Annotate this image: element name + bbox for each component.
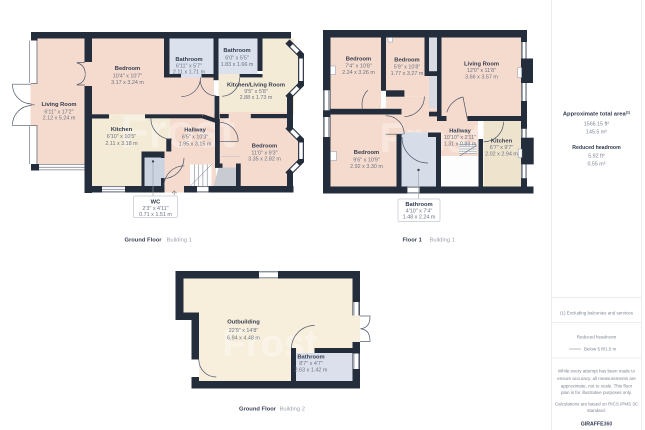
svg-text:11'0" x 9'3": 11'0" x 9'3" xyxy=(251,151,277,157)
svg-text:6'5" x 10'3": 6'5" x 10'3" xyxy=(182,135,209,141)
svg-text:Calculations are based on RICS: Calculations are based on RICS IPMS 3C xyxy=(555,402,639,407)
svg-text:Reduced headroom: Reduced headroom xyxy=(572,145,621,151)
svg-text:Bedroom: Bedroom xyxy=(354,150,379,156)
svg-text:3.17 x 3.24 m: 3.17 x 3.24 m xyxy=(111,80,144,86)
svg-text:Living Room: Living Room xyxy=(464,62,499,68)
svg-text:1566.15 ft²: 1566.15 ft² xyxy=(584,122,610,128)
svg-text:Kitchen: Kitchen xyxy=(111,127,133,133)
svg-text:Hallway: Hallway xyxy=(449,129,471,135)
svg-text:Bathroom: Bathroom xyxy=(175,57,202,63)
svg-text:Outbuilding: Outbuilding xyxy=(227,320,260,326)
svg-text:Bedroom: Bedroom xyxy=(252,143,277,149)
svg-text:Bedroom: Bedroom xyxy=(394,58,419,64)
svg-text:2.88 x 1.73 m: 2.88 x 1.73 m xyxy=(240,95,273,101)
svg-text:Bedroom: Bedroom xyxy=(346,57,371,63)
svg-text:10'10" x 2'11": 10'10" x 2'11" xyxy=(444,135,476,141)
svg-text:Bedroom: Bedroom xyxy=(115,66,140,72)
svg-text:6'7" x 9'7": 6'7" x 9'7" xyxy=(490,145,514,151)
svg-text:12'0" x 11'8": 12'0" x 11'8" xyxy=(467,68,496,74)
svg-text:Ground Floor: Ground Floor xyxy=(239,407,277,413)
svg-text:Hallway: Hallway xyxy=(184,128,206,134)
svg-text:WC: WC xyxy=(151,200,161,206)
svg-text:Building 2: Building 2 xyxy=(280,407,305,413)
svg-text:GIRAFFE360: GIRAFFE360 xyxy=(581,421,613,427)
svg-text:standard.: standard. xyxy=(587,408,606,413)
svg-text:2.92 x 3.30 m: 2.92 x 3.30 m xyxy=(350,164,383,170)
svg-text:9'6" x 10'9": 9'6" x 10'9" xyxy=(353,158,380,164)
svg-text:While every attempt has been m: While every attempt has been made to xyxy=(558,369,636,374)
svg-text:Floor 1: Floor 1 xyxy=(403,238,423,244)
svg-text:(1) Excluding balconies and se: (1) Excluding balconies and services xyxy=(560,311,634,316)
svg-text:Reduced headroom: Reduced headroom xyxy=(577,335,617,340)
svg-text:Building 1: Building 1 xyxy=(430,238,455,244)
svg-text:ensure accuracy, all measureme: ensure accuracy, all measurements are xyxy=(557,376,636,381)
svg-text:3.35 x 2.82 m: 3.35 x 2.82 m xyxy=(248,157,281,163)
svg-text:1.77 x 3.27 m: 1.77 x 3.27 m xyxy=(391,71,424,77)
svg-text:22'9" x 14'8": 22'9" x 14'8" xyxy=(229,328,259,334)
svg-text:Bathroom: Bathroom xyxy=(297,355,324,361)
svg-text:145.5 m²: 145.5 m² xyxy=(586,130,607,136)
svg-text:5'9" x 10'8": 5'9" x 10'8" xyxy=(394,65,421,71)
svg-text:2.11 x 1.71 m: 2.11 x 1.71 m xyxy=(173,70,206,76)
svg-text:4'10" x 7'4": 4'10" x 7'4" xyxy=(406,208,433,214)
svg-text:Approximate total area(1): Approximate total area(1) xyxy=(563,111,631,118)
svg-text:2.12 x 5.24 m: 2.12 x 5.24 m xyxy=(43,116,76,122)
svg-text:3.66 x 3.57 m: 3.66 x 3.57 m xyxy=(465,75,498,81)
svg-text:0.55 m²: 0.55 m² xyxy=(588,162,606,168)
svg-text:Building 1: Building 1 xyxy=(167,238,192,244)
svg-text:Living Room: Living Room xyxy=(41,102,76,108)
svg-text:Kitchen/Living Room: Kitchen/Living Room xyxy=(227,83,285,89)
svg-text:Ground Floor: Ground Floor xyxy=(125,238,163,244)
svg-text:2.02 x 2.94 m: 2.02 x 2.94 m xyxy=(485,152,518,158)
svg-text:1.48 x 2.24 m: 1.48 x 2.24 m xyxy=(403,215,436,221)
svg-text:plan is for illustrative purpo: plan is for illustrative purposes only. xyxy=(561,390,632,395)
svg-text:2.11 x 3.18 m: 2.11 x 3.18 m xyxy=(105,141,138,147)
svg-text:7'4" x 10'8": 7'4" x 10'8" xyxy=(345,64,372,70)
svg-text:Below 5 ft/1.5 m: Below 5 ft/1.5 m xyxy=(584,346,617,351)
svg-text:Kitchen: Kitchen xyxy=(491,139,513,145)
svg-text:6.94 x 4.48 m: 6.94 x 4.48 m xyxy=(227,336,260,342)
svg-text:1.83 x 1.66 m: 1.83 x 1.66 m xyxy=(221,62,254,68)
svg-text:approximate, not to scale. Thi: approximate, not to scale. This floor xyxy=(561,384,633,389)
svg-text:2.63 x 1.42 m: 2.63 x 1.42 m xyxy=(295,368,328,374)
svg-text:Bathroom: Bathroom xyxy=(405,202,432,208)
svg-text:1.31 x 0.89 m: 1.31 x 0.89 m xyxy=(444,142,477,148)
svg-text:Bathroom: Bathroom xyxy=(223,48,250,54)
svg-text:2.24 x 3.26 m: 2.24 x 3.26 m xyxy=(342,70,375,76)
svg-text:5.92 ft²: 5.92 ft² xyxy=(588,153,605,159)
svg-text:6'0" x 5'5": 6'0" x 5'5" xyxy=(225,56,249,62)
svg-text:10'4" x 10'7": 10'4" x 10'7" xyxy=(113,74,143,80)
svg-text:1.95 x 3.15 m: 1.95 x 3.15 m xyxy=(179,141,212,147)
svg-text:6'11" x 17'2": 6'11" x 17'2" xyxy=(44,109,73,115)
svg-text:0.71 x 1.51 m: 0.71 x 1.51 m xyxy=(139,212,172,218)
svg-text:6'10" x 10'5": 6'10" x 10'5" xyxy=(107,134,137,140)
svg-text:8'7" x 4'7": 8'7" x 4'7" xyxy=(299,361,323,367)
